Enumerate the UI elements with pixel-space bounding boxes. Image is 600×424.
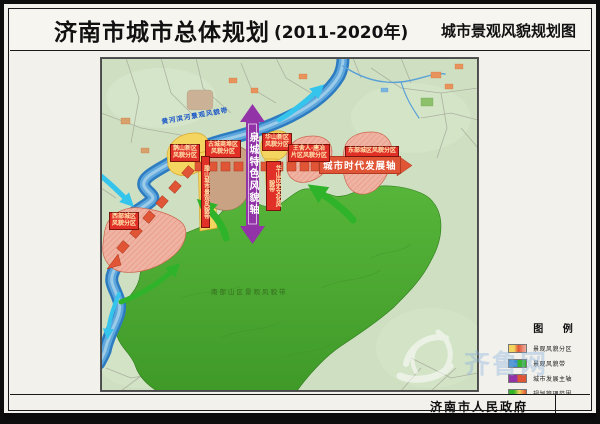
- zone-label-gucheng: 古城商埠区 风貌分区: [205, 140, 241, 158]
- bottom-border: [4, 413, 596, 420]
- map-subtitle: 城市景观风貌规划图: [441, 20, 576, 41]
- legend-item: 城市发展主轴: [508, 374, 598, 383]
- development-axis-label: 城市时代发展轴: [319, 156, 401, 174]
- band-label-huashan: 华山历史文化风貌带: [266, 161, 281, 211]
- band-label-lashan: 腊山城市景观风貌带: [201, 156, 210, 228]
- page-title-years: (2011-2020年): [274, 18, 408, 43]
- legend-swatch-zones: [508, 344, 527, 353]
- zone-label-dongbu: 东部城区风貌分区: [345, 146, 399, 157]
- planning-map: 黄河滨河景观风貌带 泉城特色风貌轴 城市时代发展轴 南部山区景观风貌带 鹊山新区…: [100, 57, 479, 392]
- page-title: 济南市城市总体规划: [54, 13, 270, 47]
- zone-label-xibu: 西部城区 风貌分区: [109, 212, 139, 230]
- legend: 图 例 景观风貌分区 景观风貌带 城市发展主轴 规划管理范围: [508, 320, 598, 404]
- legend-item: 景观风貌带: [508, 359, 598, 368]
- legend-title: 图 例: [508, 320, 598, 335]
- legend-swatch-belts: [508, 359, 527, 368]
- zone-label-wangsheren: 王舍人·唐冶 片区风貌分区: [288, 144, 330, 162]
- zone-label-queshan: 鹊山新区 风貌分区: [170, 144, 200, 162]
- legend-swatch-axes: [508, 374, 527, 383]
- spring-axis-label: 泉城特色风貌轴: [245, 122, 260, 226]
- legend-item: 景观风貌分区: [508, 344, 598, 353]
- planning-sheet: 济南市城市总体规划 (2011-2020年) 城市景观风貌规划图: [0, 0, 600, 424]
- map-graphic: [101, 58, 478, 391]
- south-mountain-belt-label: 南部山区景观风貌带: [211, 286, 288, 296]
- sheet-header: 济南市城市总体规划 (2011-2020年) 城市景观风貌规划图: [10, 10, 590, 51]
